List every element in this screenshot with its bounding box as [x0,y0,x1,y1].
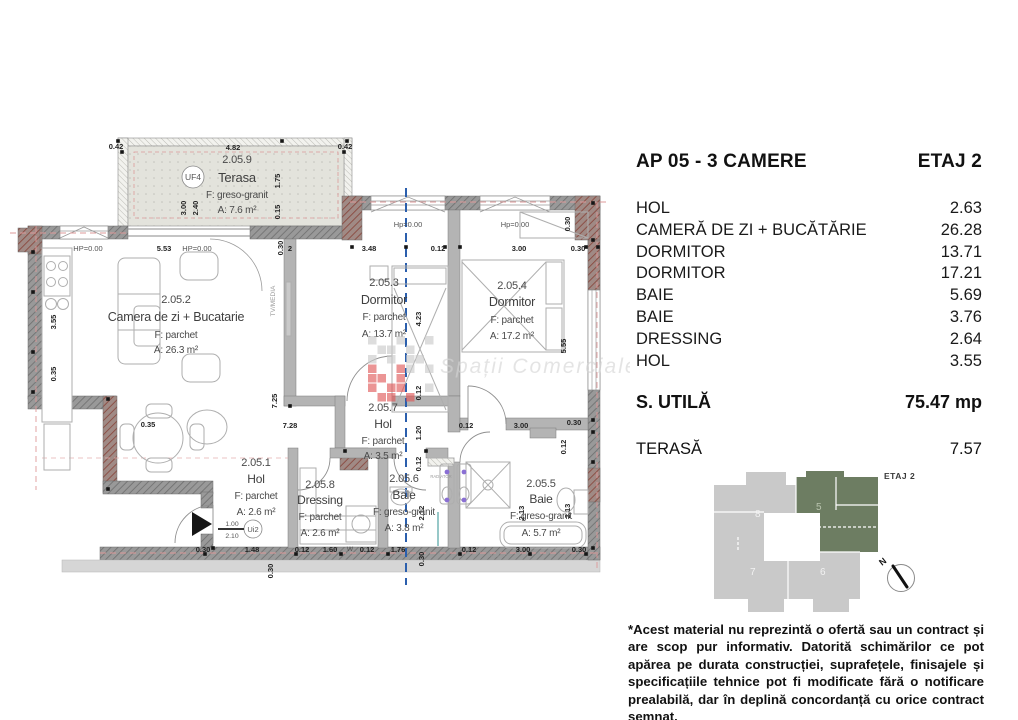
floorplan-page: 0.424.820.423.002.401.750.15HP=0.005.53H… [0,0,1018,720]
dim-label: 0.15 [273,205,282,220]
room-label: F: greso-granit [373,507,435,518]
room-label: 2.05.5 [526,478,555,490]
dim-label: 0.12 [414,457,423,472]
minimap-unit8-number: 8 [755,509,761,520]
room-row-label: BAIE [636,285,674,307]
dim-label: 0.35 [49,367,58,382]
dim-label: 4.23 [414,312,423,327]
dim-label: 3.00 [179,201,188,216]
dim-label: 1.75 [273,174,282,189]
dim-label: 1.48 [245,545,260,554]
room-label: Dressing [297,493,343,507]
room-row-label: DRESSING [636,329,722,351]
dim-label: 1.60 [323,545,338,554]
room-label: 2.05.1 [241,457,270,469]
room-row-label: HOL [636,198,670,220]
dim-label: 0.12 [414,386,423,401]
room-row: DORMITOR17.21 [636,263,982,285]
minimap-floor-label: ETAJ 2 [884,471,915,481]
dim-label: 0.30 [571,244,586,253]
room-label: F: greso-granit [206,190,268,201]
room-label: Baie [529,492,553,506]
room-label: 2.05.7 [368,402,397,414]
room-row: CAMERĂ DE ZI + BUCĂTĂRIE26.28 [636,220,982,242]
svg-text:Spații Comerciale Cluj: Spații Comerciale Cluj [440,355,630,378]
bedroom-window-icon [480,196,550,212]
dim-label: Hp=0.00 [501,220,530,229]
floor-plan-drawing: 0.424.820.423.002.401.750.15HP=0.005.53H… [0,0,630,720]
room-label: A: 7.6 m² [218,205,258,216]
room-label: F: parchet [154,330,197,341]
room-label: F: parchet [490,315,533,326]
room-label: A: 2.6 m² [237,507,277,518]
dim-label: 0.12 [462,545,477,554]
apartment-title: AP 05 - 3 CAMERE [636,151,807,173]
dim-label: HP=0.00 [182,244,211,253]
dim-label: 3.48 [362,244,377,253]
room-label: 2.05.8 [305,479,334,491]
room-label: A: 3.5 m² [364,451,404,462]
room-row: DORMITOR13.71 [636,242,982,264]
room-label: A: 2.6 m² [301,528,341,539]
room-row: BAIE5.69 [636,285,982,307]
dim-label: RADIATOR [430,474,451,479]
room-label: F: greso-granit [510,511,572,522]
dim-label: 1.20 [414,426,423,441]
dim-label: 0.30 [196,545,211,554]
minimap-unit6-number: 6 [820,567,826,578]
room-row-value: 3.55 [950,351,982,373]
room-row-label: BAIE [636,307,674,329]
building-minimap: 8 5 7 6 ETAJ 2 N [703,462,925,617]
total-area-row: S. UTILĂ 75.47 mp [636,392,982,413]
room-label: A: 17.2 m² [490,331,535,342]
dim-label: 0.30 [417,552,426,567]
room-row: BAIE3.76 [636,307,982,329]
room-row: HOL2.63 [636,198,982,220]
room-label: 2.05.6 [389,473,418,485]
room-label: Hol [374,417,391,431]
dim-label: 3.00 [516,545,531,554]
dim-label: 2.40 [191,201,200,216]
bedroom-window-icon [371,196,445,212]
terrace-area-row: TERASĂ 7.57 [636,440,982,459]
minimap-unit7-number: 7 [750,567,756,578]
dim-label: 5.55 [559,339,568,354]
dim-label: 0.12 [295,545,310,554]
room-label: 2.05.9 [222,154,251,166]
total-area-value: 75.47 mp [905,392,982,413]
room-row-value: 13.71 [941,242,982,264]
dim-label: Hp=0.00 [394,220,423,229]
entrance-arrow-icon [192,512,212,536]
room-row-value: 26.28 [941,220,982,242]
room-label: 2.05.3 [369,277,398,289]
room-label: A: 5.7 m² [522,528,562,539]
dim-label: 7.25 [270,394,279,409]
dim-label: 0.35 [141,420,156,429]
room-row-value: 3.76 [950,307,982,329]
disclaimer-text: *Acest material nu reprezintă o ofertă s… [628,621,984,720]
dim-label: 3.55 [49,315,58,330]
dim-label: 0.42 [338,142,353,151]
dim-label: 0.12 [459,421,474,430]
dim-label: 3.00 [514,421,529,430]
terrace-area [118,138,352,233]
room-area-table: HOL2.63CAMERĂ DE ZI + BUCĂTĂRIE26.28DORM… [636,198,982,372]
door-tag: Ui2 [247,525,258,534]
dim-label: 0.12 [431,244,446,253]
room-label: Camera de zi + Bucatarie [108,310,245,324]
dim-label: 5.53 [157,244,172,253]
dim-label: 2 [288,244,292,253]
room-label: F: parchet [298,512,341,523]
total-area-label: S. UTILĂ [636,392,711,413]
dim-label: HP=0.00 [73,244,102,253]
room-label: Dormitor [361,293,407,307]
compass-icon: N [877,556,914,592]
terrace-door-icon [128,229,262,291]
dim-label: 0.30 [563,217,572,232]
dim-label: 0.12 [360,545,375,554]
dim-label: RADIATOR [489,553,510,558]
room-label: F: parchet [361,436,404,447]
compass-north-label: N [877,556,888,568]
dim-label: 0.30 [567,418,582,427]
dim-label: 1.00 [225,521,238,528]
room-row-value: 2.64 [950,329,982,351]
room-row: HOL3.55 [636,351,982,373]
room-row-value: 17.21 [941,263,982,285]
minimap-unit5-number: 5 [816,502,822,513]
room-row-value: 2.63 [950,198,982,220]
dim-label: 0.30 [266,564,275,579]
room-label: Dormitor [489,295,535,309]
room-label: 2.05.4 [497,280,526,292]
dim-label: 0.12 [559,440,568,455]
room-label: A: 3.8 m² [385,523,425,534]
room-label: Hol [247,472,264,486]
room-label: 2.05.2 [161,294,190,306]
room-row-label: DORMITOR [636,242,726,264]
room-label: Baie [392,488,416,502]
floor-label: ETAJ 2 [918,151,982,173]
terrace-label: TERASĂ [636,440,702,459]
dim-label: 3.00 [512,244,527,253]
dim-label: 4.82 [226,143,241,152]
room-label: F: parchet [362,312,405,323]
dim-label: 7.28 [283,421,298,430]
dim-label: 1.76 [391,545,406,554]
room-label: A: 26.3 m² [154,345,199,356]
terrace-value: 7.57 [950,440,982,459]
dim-label: 0.30 [572,545,587,554]
dim-label: 0.42 [109,142,124,151]
room-row-value: 5.69 [950,285,982,307]
room-label: F: parchet [234,491,277,502]
dim-label: W [347,546,354,553]
living-window-icon [60,226,108,239]
room-row-label: DORMITOR [636,263,726,285]
room-row: DRESSING2.64 [636,329,982,351]
room-row-label: CAMERĂ DE ZI + BUCĂTĂRIE [636,220,867,242]
dim-label: 2.10 [225,533,238,540]
room-row-label: HOL [636,351,670,373]
dim-label: TV/MEDIA [270,285,277,316]
room-label: Terasa [218,170,257,185]
unit-tag: UF4 [185,172,201,182]
dim-label: 0.30 [276,241,285,256]
